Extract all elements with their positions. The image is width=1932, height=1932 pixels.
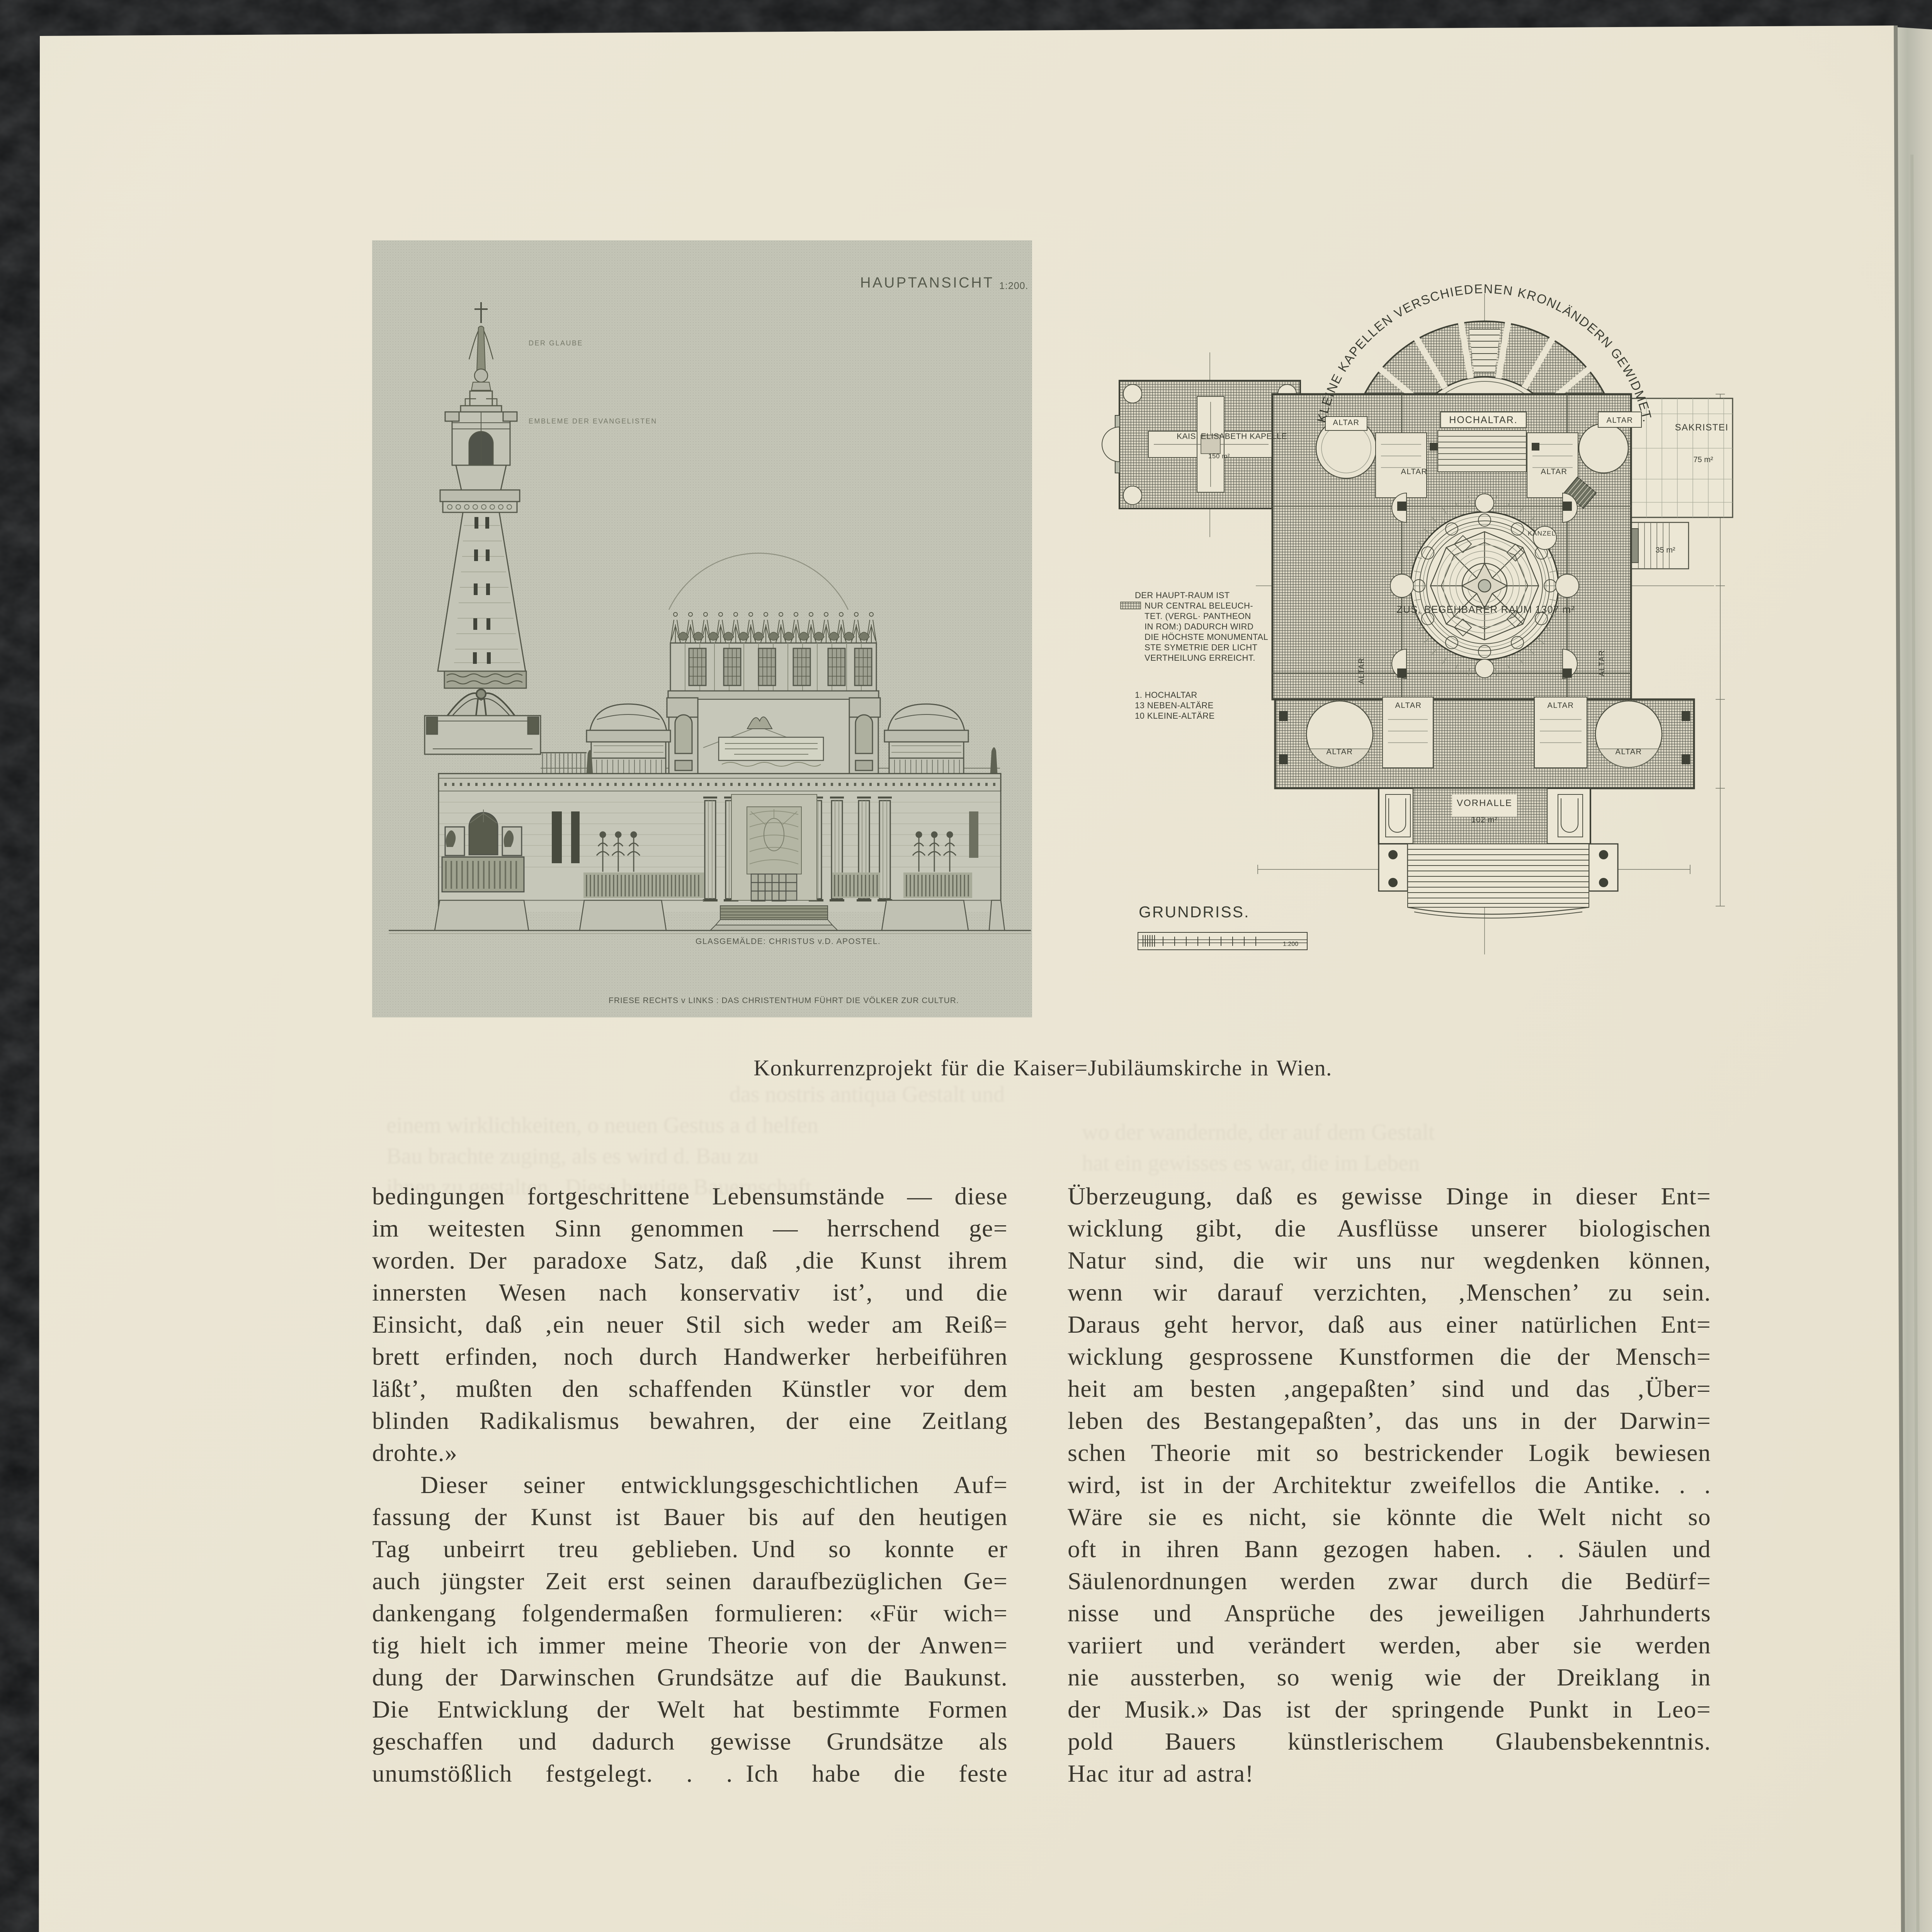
svg-text:1:200: 1:200 — [1283, 941, 1298, 947]
svg-text:IN ROM:) DADURCH WIRD: IN ROM:) DADURCH WIRD — [1145, 622, 1253, 631]
svg-text:HAUPTANSICHT: HAUPTANSICHT — [860, 275, 994, 291]
svg-text:ALTAR: ALTAR — [1598, 650, 1606, 677]
svg-text:KAIS. ELISABETH KAPELLE: KAIS. ELISABETH KAPELLE — [1177, 432, 1287, 441]
svg-text:150 m²: 150 m² — [1208, 452, 1230, 460]
svg-text:FRIESE RECHTS v LINKS : DAS CH: FRIESE RECHTS v LINKS : DAS CHRISTENTHUM… — [609, 996, 959, 1005]
svg-text:DER GLAUBE: DER GLAUBE — [529, 339, 583, 347]
svg-text:75 m²: 75 m² — [1693, 456, 1713, 464]
svg-text:ZUS. BEGEHBARER RAUM 1307 m²: ZUS. BEGEHBARER RAUM 1307 m² — [1396, 604, 1575, 615]
svg-text:VERTHEILUNG ERREICHT.: VERTHEILUNG ERREICHT. — [1145, 653, 1255, 663]
svg-text:SAKRISTEI: SAKRISTEI — [1675, 422, 1729, 433]
svg-text:VORHALLE: VORHALLE — [1457, 798, 1512, 808]
svg-text:ALTAR: ALTAR — [1401, 468, 1428, 476]
svg-text:GRUNDRISS.: GRUNDRISS. — [1139, 903, 1250, 921]
svg-text:ALTAR: ALTAR — [1327, 748, 1353, 756]
svg-text:ALTAR: ALTAR — [1541, 468, 1568, 476]
svg-text:DIE HÖCHSTE MONUMENTAL: DIE HÖCHSTE MONUMENTAL — [1145, 632, 1268, 642]
svg-text:KANZEL: KANZEL — [1528, 530, 1556, 537]
svg-text:ALTAR: ALTAR — [1395, 701, 1422, 710]
svg-text:DER HAUPT-RAUM IST: DER HAUPT-RAUM IST — [1135, 590, 1230, 600]
svg-text:102 m²: 102 m² — [1471, 816, 1498, 824]
svg-text:1:200.: 1:200. — [999, 281, 1029, 291]
svg-text:ALTAR: ALTAR — [1548, 701, 1574, 710]
svg-text:35 m²: 35 m² — [1655, 546, 1675, 554]
svg-text:1. HOCHALTAR: 1. HOCHALTAR — [1135, 690, 1197, 700]
svg-text:GLASGEMÄLDE: CHRISTUS v.D. APO: GLASGEMÄLDE: CHRISTUS v.D. APOSTEL. — [696, 937, 881, 946]
svg-text:TET. (VERGL· PANTHEON: TET. (VERGL· PANTHEON — [1145, 611, 1251, 621]
svg-text:13 NEBEN-ALTÄRE: 13 NEBEN-ALTÄRE — [1135, 701, 1214, 710]
svg-text:ALTAR: ALTAR — [1616, 748, 1642, 756]
svg-text:ALTAR: ALTAR — [1357, 658, 1366, 684]
svg-text:HOCHALTAR.: HOCHALTAR. — [1449, 415, 1517, 425]
svg-text:ALTAR: ALTAR — [1607, 416, 1633, 425]
svg-text:NUR CENTRAL BELEUCH-: NUR CENTRAL BELEUCH- — [1145, 601, 1253, 611]
svg-text:ALTAR: ALTAR — [1333, 418, 1360, 427]
svg-text:EMBLEME DER EVANGELISTEN: EMBLEME DER EVANGELISTEN — [529, 417, 657, 425]
svg-text:10 KLEINE-ALTÄRE: 10 KLEINE-ALTÄRE — [1135, 711, 1215, 721]
svg-text:STE SYMETRIE DER LICHT: STE SYMETRIE DER LICHT — [1145, 643, 1257, 652]
